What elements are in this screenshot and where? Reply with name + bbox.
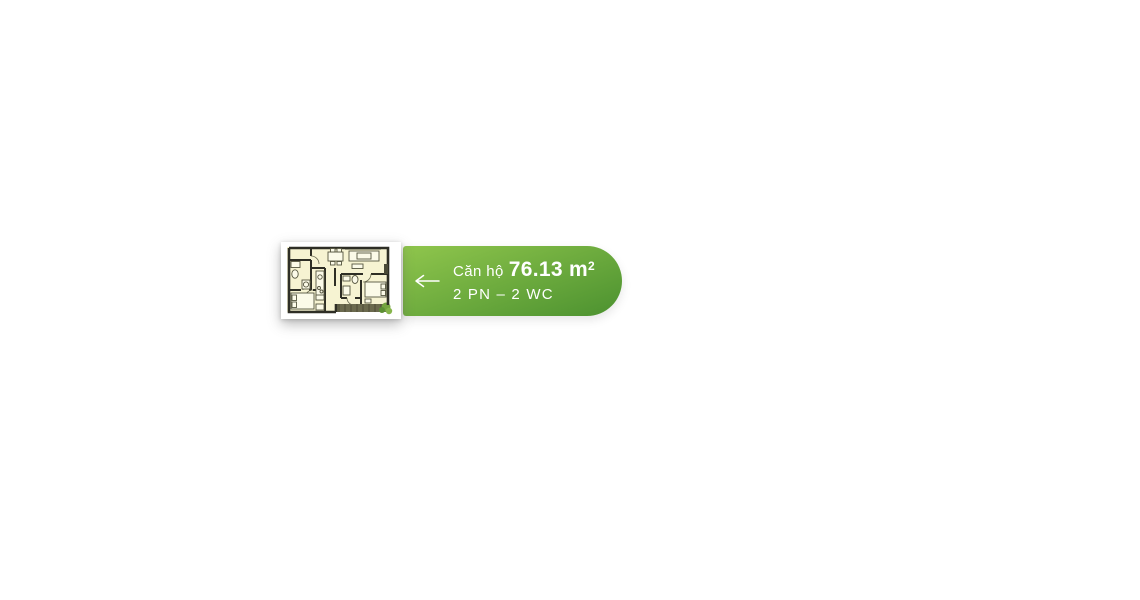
banner-text: Căn hộ76.13 m2 2 PN – 2 WC [453,258,595,303]
floor-plan-image [285,246,397,315]
apartment-rooms: 2 PN – 2 WC [453,286,595,303]
page: Căn hộ76.13 m2 2 PN – 2 WC [0,0,1140,600]
apartment-label: Căn hộ [453,263,504,280]
arrow-left-icon[interactable] [414,273,440,289]
apartment-area-sup: 2 [588,259,595,273]
apartment-area-value: 76.13 m [509,258,588,281]
apartment-area-line: Căn hộ76.13 m2 [453,258,595,282]
floor-plan-thumbnail[interactable] [281,242,401,319]
apartment-info-banner[interactable]: Căn hộ76.13 m2 2 PN – 2 WC [403,246,622,316]
